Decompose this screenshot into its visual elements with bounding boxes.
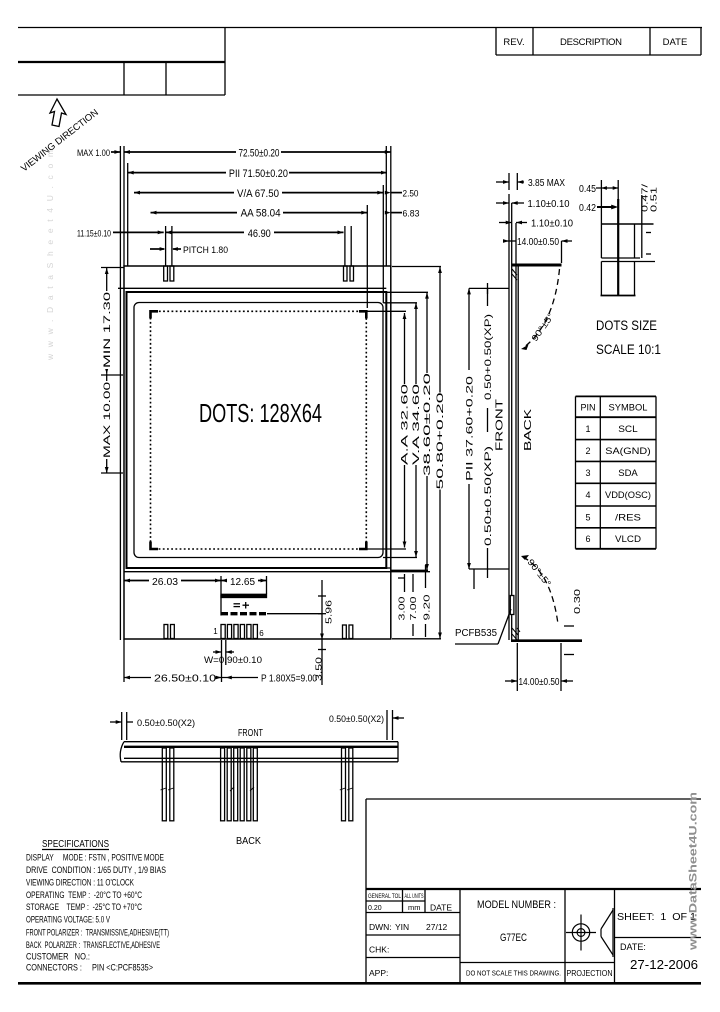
svg-text:CONNECTORS : PIN <C:PCF853: CONNECTORS : PIN <C:PCF8535> — [26, 963, 153, 973]
svg-text:2.50: 2.50 — [403, 189, 419, 200]
svg-text:DATE: DATE — [663, 37, 688, 48]
svg-text:STORAGE TEMP : -25°C TO +7: STORAGE TEMP : -25°C TO +70°C — [26, 902, 142, 912]
svg-text:5: 5 — [585, 513, 590, 523]
svg-text:1: 1 — [213, 627, 218, 636]
svg-text:PCFB535: PCFB535 — [455, 628, 497, 639]
svg-text:1.10±0.10: 1.10±0.10 — [528, 199, 570, 210]
svg-text:6: 6 — [259, 629, 264, 638]
svg-text:46.90: 46.90 — [248, 228, 271, 240]
svg-text:DRIVE CONDITION : 1/65 DUTY ,: DRIVE CONDITION : 1/65 DUTY , 1/9 BIAS — [26, 865, 166, 875]
svg-text:26.03: 26.03 — [152, 577, 178, 588]
svg-text:BACK POLARIZER : TRANSFLECTI: BACK POLARIZER : TRANSFLECTIVE,ADHESIVE — [26, 940, 160, 950]
svg-text:G77EC: G77EC — [500, 932, 527, 944]
svg-text:14.00±0.50: 14.00±0.50 — [519, 677, 560, 688]
svg-text:SCALE 10:1: SCALE 10:1 — [596, 342, 661, 357]
svg-text:A.A 32.60: A.A 32.60 — [400, 384, 410, 465]
svg-text:FRONT: FRONT — [495, 399, 506, 451]
svg-text:27-12-2006: 27-12-2006 — [630, 958, 698, 972]
svg-text:6.83: 6.83 — [403, 209, 420, 220]
svg-text:27/12: 27/12 — [426, 922, 448, 932]
svg-text:DESCRIPTION: DESCRIPTION — [560, 37, 622, 48]
svg-text:MAX 10.00: MAX 10.00 — [102, 382, 112, 458]
svg-text:ALL UNITS: ALL UNITS — [405, 894, 424, 900]
svg-text:0.51: 0.51 — [649, 187, 659, 212]
svg-text:9.20: 9.20 — [422, 594, 432, 620]
svg-text:3: 3 — [585, 468, 590, 478]
svg-text:38.60±0.20: 38.60±0.20 — [422, 373, 432, 476]
svg-text:APP:: APP: — [369, 968, 388, 978]
svg-text:CUSTOMER NO.:: CUSTOMER NO.: — [26, 952, 90, 962]
svg-text:W=0.90±0.10: W=0.90±0.10 — [204, 655, 262, 666]
svg-text:PII 71.50±0.20: PII 71.50±0.20 — [229, 168, 288, 180]
svg-text:SCL: SCL — [618, 424, 638, 434]
svg-text:AA 58.04: AA 58.04 — [241, 208, 281, 220]
svg-text:OPERATING VOLTAGE: 5.0 V: OPERATING VOLTAGE: 5.0 V — [26, 915, 110, 925]
svg-text:DWN:: DWN: — [369, 922, 392, 932]
svg-text:DOTS SIZE: DOTS SIZE — [596, 318, 657, 333]
svg-text:OPERATING TEMP : -20°C TO +6: OPERATING TEMP : -20°C TO +60°C — [26, 890, 142, 900]
svg-text:0.42: 0.42 — [579, 203, 596, 214]
svg-text:PROJECTION: PROJECTION — [567, 968, 613, 978]
svg-text:4: 4 — [585, 490, 590, 500]
svg-text:FRONT: FRONT — [238, 727, 263, 739]
svg-text:0.45: 0.45 — [579, 184, 596, 195]
svg-text:MIN 17.30: MIN 17.30 — [102, 292, 112, 368]
svg-text:DATE:: DATE: — [620, 942, 646, 952]
svg-text:11.15±0.10: 11.15±0.10 — [77, 229, 111, 240]
svg-text:GENERAL TOL: GENERAL TOL — [368, 894, 402, 900]
svg-text:SA(GND): SA(GND) — [605, 446, 651, 456]
svg-text:CHK:: CHK: — [369, 945, 389, 955]
svg-text:6: 6 — [585, 534, 590, 544]
svg-text:www.DataSheet4U.com: www.DataSheet4U.com — [688, 792, 700, 952]
svg-text:MODEL NUMBER :: MODEL NUMBER : — [477, 899, 556, 911]
svg-text:72.50±0.20: 72.50±0.20 — [239, 148, 280, 160]
svg-text:DOTS: 128X64: DOTS: 128X64 — [199, 398, 322, 428]
svg-text:VLCD: VLCD — [615, 534, 642, 544]
svg-text:0.50±0.50(X2): 0.50±0.50(X2) — [329, 714, 384, 725]
svg-text:PII 37.60+0.20: PII 37.60+0.20 — [465, 376, 475, 481]
svg-text:1: 1 — [585, 424, 590, 434]
svg-text:2: 2 — [585, 446, 590, 456]
svg-text:mm: mm — [408, 903, 421, 912]
svg-text:MAX 1.00: MAX 1.00 — [77, 148, 110, 159]
svg-text:YIN: YIN — [395, 922, 409, 932]
svg-text:V.A 34.60: V.A 34.60 — [411, 384, 421, 465]
svg-text:0.20: 0.20 — [368, 905, 382, 912]
svg-text:SPECIFICATIONS: SPECIFICATIONS — [42, 839, 109, 850]
svg-text:VDD(OSC): VDD(OSC) — [605, 490, 651, 500]
svg-text:3.85 MAX: 3.85 MAX — [528, 178, 565, 189]
svg-text:DO NOT SCALE THIS DRAWING.: DO NOT SCALE THIS DRAWING. — [466, 969, 561, 978]
svg-text:50.80+0.20: 50.80+0.20 — [435, 393, 445, 490]
svg-text:14.00±0.50: 14.00±0.50 — [517, 237, 559, 248]
svg-text:PIN: PIN — [580, 402, 595, 412]
svg-text:1.10±0.10: 1.10±0.10 — [531, 219, 573, 230]
svg-text:PITCH 1.80: PITCH 1.80 — [183, 245, 228, 256]
svg-text:SDA: SDA — [618, 468, 638, 478]
svg-text:P 1.80X5=9.00: P 1.80X5=9.00 — [261, 674, 317, 685]
svg-text:0.50+0.50(XP): 0.50+0.50(XP) — [483, 314, 493, 400]
svg-text:BACK: BACK — [523, 408, 534, 451]
svg-text:5.96: 5.96 — [324, 600, 334, 624]
svg-text:VIEWING DIRECTION : 11 O'CLOCK: VIEWING DIRECTION : 11 O'CLOCK — [26, 878, 134, 888]
svg-text:/RES: /RES — [615, 513, 641, 523]
svg-text:REV.: REV. — [503, 37, 524, 48]
svg-text:3.00: 3.00 — [397, 596, 407, 620]
svg-text:0.30: 0.30 — [572, 589, 582, 614]
svg-text:SYMBOL: SYMBOL — [609, 402, 648, 412]
svg-text:SHEET: 1 OF 1: SHEET: 1 OF 1 — [617, 911, 696, 923]
svg-text:FRONT POLARIZER : TRANSMISSIV: FRONT POLARIZER : TRANSMISSIVE,ADHESIVE(… — [26, 928, 169, 938]
svg-text:0.50±0.50(XP): 0.50±0.50(XP) — [483, 446, 493, 546]
svg-text:7.00: 7.00 — [408, 596, 418, 620]
svg-text:DATE: DATE — [430, 903, 452, 913]
svg-text:0.50±0.50(X2): 0.50±0.50(X2) — [137, 718, 195, 729]
svg-text:DISPLAY MODE : FSTN , POSI: DISPLAY MODE : FSTN , POSITIVE MODE — [26, 853, 164, 863]
svg-text:BACK: BACK — [236, 835, 261, 847]
svg-text:26.50±0.10: 26.50±0.10 — [154, 674, 217, 685]
svg-text:12.65: 12.65 — [230, 577, 255, 588]
svg-text:V/A 67.50: V/A 67.50 — [237, 188, 279, 200]
